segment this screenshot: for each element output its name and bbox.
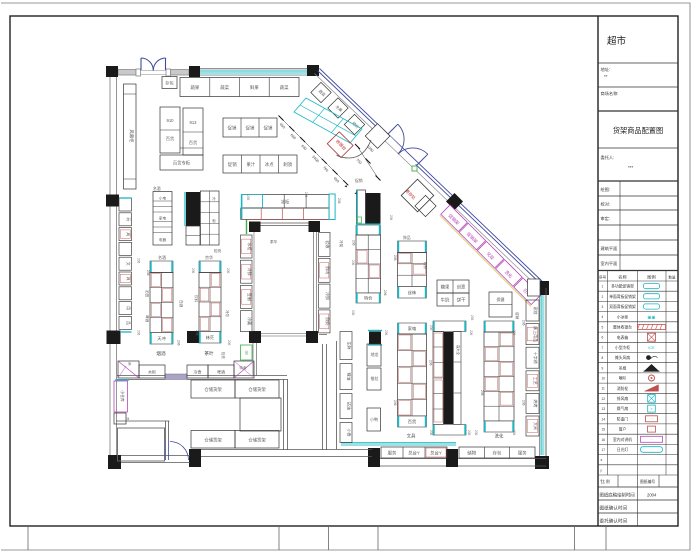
svg-text:啤酒: 啤酒: [217, 369, 225, 375]
svg-text:206: 206: [137, 258, 141, 264]
svg-text:烟酒: 烟酒: [156, 350, 166, 357]
svg-text:工艺: 工艺: [533, 377, 538, 385]
svg-text:促销: 促销: [355, 178, 363, 183]
svg-text:特价: 特价: [364, 295, 373, 301]
svg-text:206: 206: [227, 340, 231, 346]
svg-text:206: 206: [429, 325, 433, 331]
svg-text:家电: 家电: [159, 216, 167, 221]
svg-text:冷藏: 冷藏: [247, 317, 253, 325]
svg-text:13: 13: [602, 407, 606, 411]
svg-text:风幕柜: 风幕柜: [128, 130, 135, 144]
svg-text:建筑平面: 建筑平面: [601, 245, 618, 252]
svg-text:创意: 创意: [457, 283, 466, 290]
svg-text:···: ···: [650, 448, 653, 452]
svg-text:8: 8: [602, 356, 604, 360]
svg-text:文具: 文具: [407, 433, 416, 440]
svg-text:促销: 促销: [515, 312, 520, 320]
svg-text:换气扇: 换气扇: [617, 406, 629, 411]
svg-text:仓储货架: 仓储货架: [204, 437, 222, 444]
svg-text:910: 910: [167, 118, 175, 123]
svg-text:果汁: 果汁: [246, 161, 255, 168]
svg-text:236: 236: [384, 330, 388, 336]
svg-text:206: 206: [351, 310, 355, 316]
svg-text:洗化: 洗化: [495, 433, 504, 440]
svg-text:仓储货架: 仓储货架: [204, 386, 222, 393]
svg-text:家纹: 家纹: [533, 307, 539, 315]
svg-text:品: 品: [126, 321, 131, 325]
svg-text:206: 206: [470, 315, 474, 321]
svg-text:206: 206: [429, 430, 433, 436]
svg-text:···: ···: [650, 284, 653, 288]
svg-text:蔬菜: 蔬菜: [280, 84, 289, 91]
svg-text:保健: 保健: [497, 296, 505, 302]
svg-text:p: p: [601, 468, 603, 472]
svg-text:···: ···: [650, 295, 653, 299]
svg-text:3: 3: [602, 305, 604, 309]
svg-text:206: 206: [191, 268, 195, 274]
svg-text:14: 14: [602, 417, 606, 421]
svg-text:具: 具: [126, 277, 132, 281]
svg-text:消防栓: 消防栓: [617, 386, 629, 391]
svg-text:审定:: 审定:: [601, 215, 611, 222]
svg-text:柜: 柜: [212, 218, 216, 223]
svg-text:仓储货架: 仓储货架: [248, 386, 266, 393]
svg-text:序号: 序号: [599, 275, 607, 280]
svg-text:2: 2: [602, 295, 604, 299]
svg-text:验收: 验收: [325, 241, 331, 249]
svg-text:松亮: 松亮: [214, 248, 222, 253]
svg-text:15: 15: [602, 428, 606, 432]
svg-text:林茫: 林茫: [206, 334, 214, 341]
svg-text:储物: 储物: [467, 449, 476, 456]
svg-text:单面背板促销架: 单面背板促销架: [609, 294, 636, 299]
svg-text:存包: 存包: [493, 449, 502, 455]
svg-text:拈油: 拈油: [347, 402, 353, 410]
svg-text:货架商品配置图: 货架商品配置图: [613, 126, 663, 135]
svg-text:206: 206: [304, 192, 308, 198]
svg-text:***: ***: [628, 165, 634, 170]
svg-text:名酒: 名酒: [153, 186, 161, 191]
svg-text:家电: 家电: [408, 325, 417, 331]
svg-text:绘图:: 绘图:: [601, 186, 611, 193]
svg-text:16: 16: [602, 438, 606, 442]
svg-text:小食: 小食: [347, 429, 353, 437]
svg-text:206: 206: [393, 255, 397, 261]
svg-text:·: ·: [651, 427, 652, 431]
svg-text:吊扇: 吊扇: [619, 365, 627, 370]
svg-text:泰华: 泰华: [270, 239, 278, 244]
svg-text:用: 用: [126, 306, 131, 310]
svg-text:床上用品: 床上用品: [533, 326, 539, 342]
svg-text:206: 206: [383, 290, 387, 296]
svg-text:冷食: 冷食: [194, 369, 202, 375]
svg-text:206: 206: [177, 340, 181, 346]
svg-text:1: 1: [602, 285, 604, 289]
svg-text:丝袜: 丝袜: [408, 289, 417, 296]
svg-text:图纸编号: 图纸编号: [640, 479, 655, 484]
svg-text:206: 206: [512, 330, 516, 336]
svg-text:蔬果: 蔬果: [191, 84, 200, 91]
svg-text:小型冷柜: 小型冷柜: [615, 345, 630, 350]
svg-text:玩: 玩: [126, 217, 131, 221]
svg-text:10: 10: [602, 377, 606, 381]
svg-text:排风扇: 排风扇: [617, 396, 629, 401]
svg-text:a: a: [601, 458, 603, 462]
svg-text:鲜果: 鲜果: [250, 84, 259, 91]
svg-text:数量: 数量: [668, 275, 676, 280]
svg-text:具: 具: [126, 232, 132, 236]
svg-text:大米: 大米: [533, 422, 539, 430]
svg-text:206: 206: [522, 400, 526, 406]
svg-text:窗户: 窗户: [619, 427, 627, 432]
svg-text:多功能促销架: 多功能促销架: [611, 284, 634, 289]
svg-text:206: 206: [195, 330, 199, 336]
svg-text:促销: 促销: [228, 124, 237, 131]
svg-text:特价: 特价: [423, 262, 428, 270]
svg-text:促销: 促销: [246, 124, 255, 131]
svg-text:7: 7: [602, 346, 604, 350]
svg-text:5: 5: [602, 325, 604, 329]
svg-text:小电: 小电: [159, 196, 167, 201]
svg-text:室内对讲机: 室内对讲机: [613, 437, 632, 442]
svg-text:超市: 超市: [607, 35, 627, 47]
svg-text:服务: 服务: [388, 449, 397, 456]
svg-text:206: 206: [467, 430, 471, 436]
svg-text:泊田: 泊田: [145, 290, 150, 298]
svg-text:防盗门: 防盗门: [617, 416, 629, 421]
svg-text:电器: 电器: [159, 237, 167, 242]
svg-text:整体收银台: 整体收银台: [613, 325, 632, 330]
svg-text:9: 9: [602, 366, 604, 370]
svg-text:6: 6: [602, 336, 604, 340]
svg-text:206: 206: [512, 430, 516, 436]
svg-text:小仓库: 小仓库: [120, 390, 125, 402]
svg-text:206: 206: [522, 320, 526, 326]
svg-text:冰点: 冰点: [265, 161, 274, 168]
svg-text:百货专柜: 百货专柜: [173, 160, 191, 167]
svg-text:京华: 京华: [205, 254, 213, 260]
svg-text:喉叭: 喉叭: [619, 376, 627, 381]
svg-text:文: 文: [126, 262, 132, 266]
svg-text:地龙: 地龙: [371, 351, 379, 357]
svg-text:··: ··: [650, 417, 652, 421]
svg-text:啤酒: 啤酒: [145, 315, 150, 323]
svg-text:水柜: 水柜: [247, 243, 253, 251]
svg-text:蔬菜: 蔬菜: [220, 84, 229, 91]
svg-text:12: 12: [602, 397, 606, 401]
svg-text:**: **: [604, 74, 608, 79]
svg-text:图纸底稿绘制时间: 图纸底稿绘制时间: [600, 492, 635, 499]
svg-text:206: 206: [337, 198, 341, 204]
svg-text:206: 206: [389, 215, 393, 221]
svg-text:双面背板促销架: 双面背板促销架: [609, 304, 636, 309]
svg-text:鲜奶: 鲜奶: [325, 317, 331, 325]
svg-text:冷: 冷: [212, 196, 216, 201]
svg-text:ICE: ICE: [648, 346, 655, 350]
svg-text:牛奶: 牛奶: [441, 296, 450, 303]
svg-text:饮料: 饮料: [194, 295, 199, 303]
svg-text:生鲜: 生鲜: [347, 342, 353, 350]
svg-text:松亮: 松亮: [221, 352, 226, 359]
svg-text:日光灯: 日光灯: [617, 447, 629, 452]
svg-text:冷鲜: 冷鲜: [325, 292, 331, 300]
svg-text:206: 206: [474, 430, 478, 436]
svg-text:冰柜: 冰柜: [281, 199, 290, 206]
svg-text:11: 11: [602, 387, 606, 391]
svg-text:比 例: 比 例: [601, 479, 610, 484]
svg-text:商场名称:: 商场名称:: [601, 90, 619, 97]
svg-text:仓储货架: 仓储货架: [248, 437, 266, 444]
svg-text:剌须: 剌须: [283, 161, 292, 168]
svg-text:206: 206: [146, 270, 150, 276]
svg-text:冷饮: 冷饮: [225, 310, 230, 318]
svg-text:206: 206: [352, 240, 356, 246]
svg-text:烘烤: 烘烤: [533, 399, 539, 407]
svg-text:特卖: 特卖: [239, 365, 247, 370]
svg-text:名酒: 名酒: [158, 254, 166, 260]
svg-text:地址:: 地址:: [601, 66, 611, 72]
svg-text:百货: 百货: [408, 418, 416, 425]
svg-text:校对:: 校对:: [601, 201, 611, 208]
svg-text:2004: 2004: [647, 493, 657, 498]
svg-text:····: ····: [650, 438, 654, 442]
svg-text:小鸭: 小鸭: [370, 416, 378, 422]
svg-text:粮油: 粮油: [347, 373, 353, 381]
svg-text:高大全: 高大全: [456, 345, 461, 356]
svg-text:十字绣: 十字绣: [533, 352, 539, 364]
svg-text:存包: 存包: [165, 80, 174, 86]
svg-text:委托人:: 委托人:: [601, 154, 615, 160]
svg-text:服务: 服务: [518, 449, 527, 456]
svg-text:冷鲜: 冷鲜: [247, 268, 253, 276]
svg-text:百货: 百货: [189, 139, 197, 146]
svg-text:▣▣: ▣▣: [648, 315, 656, 320]
svg-text:J4: J4: [126, 417, 130, 421]
svg-text:图例: 图例: [647, 274, 655, 281]
svg-text:鲜肉: 鲜肉: [325, 266, 331, 274]
svg-text:名称: 名称: [618, 274, 626, 281]
svg-text:木柜: 木柜: [148, 369, 156, 375]
svg-text:摊头风扇: 摊头风扇: [615, 355, 630, 360]
svg-text:206: 206: [246, 195, 250, 201]
svg-text:百货: 百货: [166, 135, 174, 142]
svg-text:206: 206: [429, 360, 433, 366]
svg-text:豆制: 豆制: [247, 293, 253, 301]
svg-text:糖果: 糖果: [441, 283, 450, 290]
svg-text:促销: 促销: [228, 161, 237, 168]
svg-text:913: 913: [190, 120, 198, 125]
svg-text:委托确认时间: 委托确认时间: [600, 518, 628, 525]
svg-text:天冲: 天冲: [157, 335, 165, 342]
svg-text:图纸确认时间: 图纸确认时间: [600, 505, 628, 512]
svg-text:推拉: 推拉: [371, 375, 379, 381]
svg-text:冷菜: 冷菜: [339, 240, 344, 248]
svg-text:206: 206: [137, 330, 141, 336]
svg-text:小冰柜: 小冰柜: [617, 314, 629, 319]
svg-text:17: 17: [602, 448, 606, 452]
svg-text:4: 4: [602, 315, 604, 319]
svg-text:总台Y: 总台Y: [408, 449, 420, 456]
svg-text:···: ···: [650, 305, 653, 309]
svg-text:206: 206: [351, 260, 355, 266]
svg-text:206: 206: [480, 390, 484, 396]
svg-text:饼干: 饼干: [457, 296, 466, 303]
svg-text:白酒: 白酒: [179, 300, 184, 308]
svg-text:出: 出: [245, 350, 249, 355]
svg-text:总台Y: 总台Y: [430, 449, 442, 456]
svg-text:206: 206: [393, 400, 397, 406]
svg-text:室内平面: 室内平面: [601, 260, 618, 267]
svg-text:促销: 促销: [264, 124, 273, 131]
svg-text:电表箱: 电表箱: [617, 335, 629, 340]
svg-text:饰品: 饰品: [403, 235, 411, 240]
svg-text:206: 206: [469, 330, 473, 336]
svg-text:茶叶: 茶叶: [204, 350, 214, 357]
svg-text:206: 206: [226, 268, 230, 274]
